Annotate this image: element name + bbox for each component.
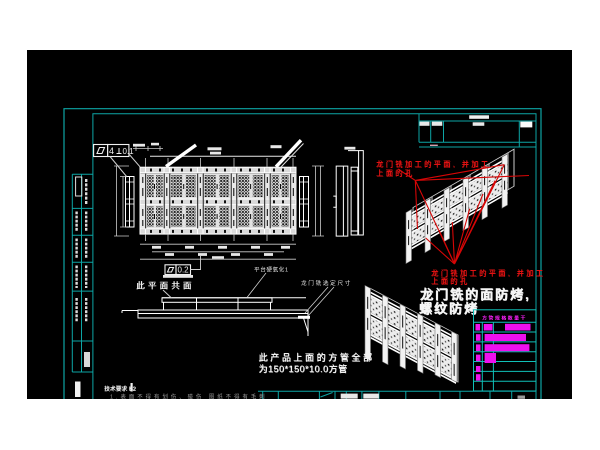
svg-text:方管规格数量干: 方管规格数量干 — [482, 315, 527, 322]
svg-text:4: 4 — [109, 146, 114, 156]
svg-text:此产品上面的方管全部: 此产品上面的方管全部 — [259, 352, 375, 363]
svg-text:1.表面不得有划伤、碰伤 图纸不得有毛刺: 1.表面不得有划伤、碰伤 图纸不得有毛刺 — [110, 393, 268, 401]
svg-text:为150*150*10.0方管: 为150*150*10.0方管 — [259, 364, 348, 375]
svg-text:螺纹防烤: 螺纹防烤 — [420, 302, 480, 317]
svg-text:平台硬氧化1: 平台硬氧化1 — [254, 266, 289, 274]
svg-text:上面的孔: 上面的孔 — [377, 169, 415, 178]
svg-text:上面的孔: 上面的孔 — [432, 277, 470, 286]
svg-text:0.2: 0.2 — [178, 266, 190, 275]
svg-text:此平面共面: 此平面共面 — [137, 281, 196, 291]
svg-text:龙门铣选定尺寸: 龙门铣选定尺寸 — [301, 279, 352, 287]
svg-text:0.1: 0.1 — [123, 147, 135, 156]
